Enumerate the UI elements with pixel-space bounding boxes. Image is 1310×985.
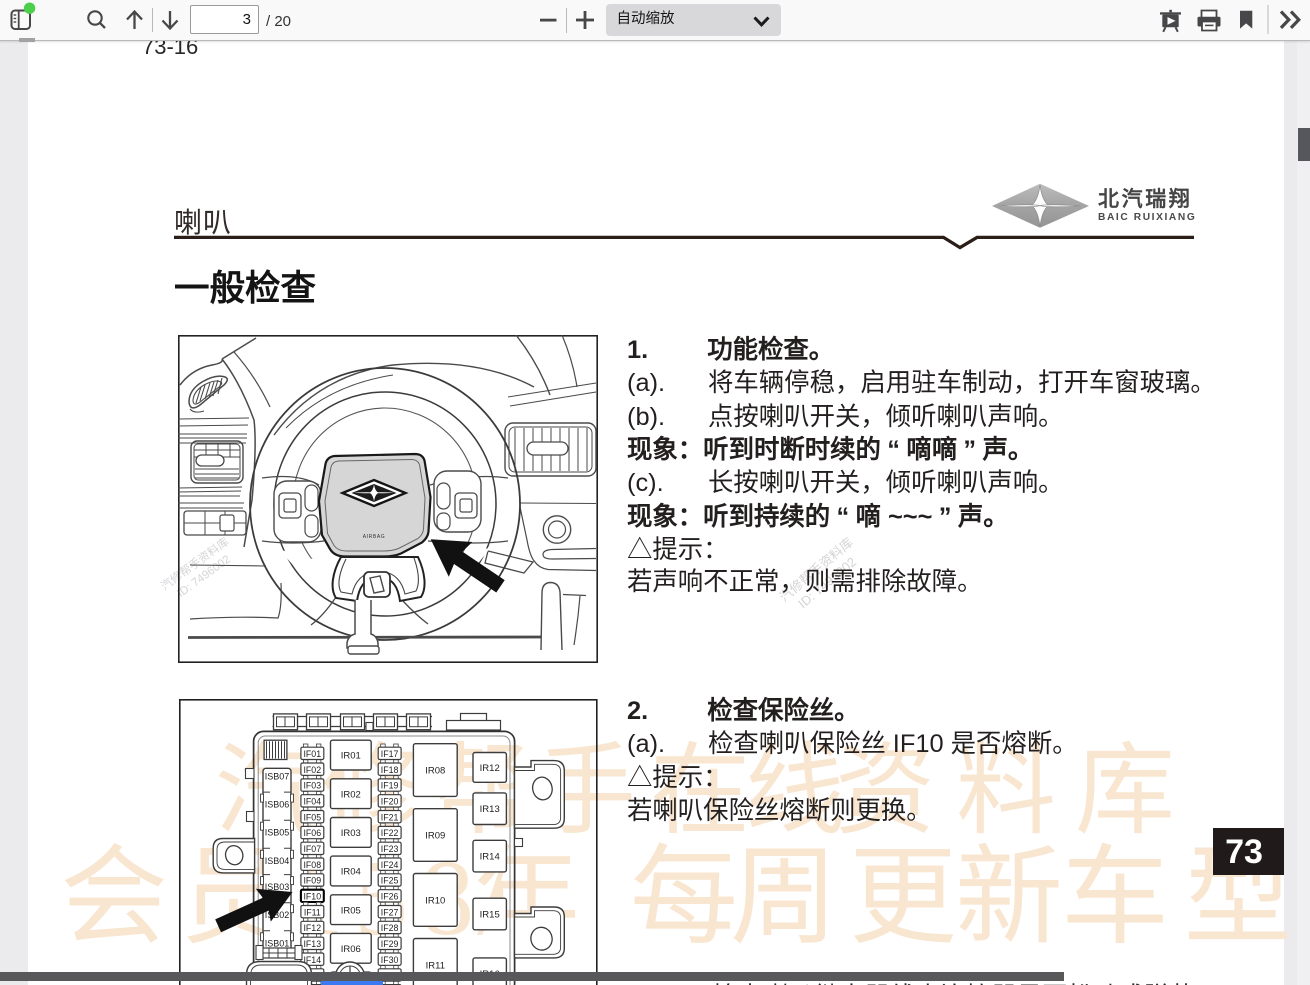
svg-text:IR13: IR13 [479,804,499,815]
svg-text:IR08: IR08 [425,765,445,776]
svg-text:IF12: IF12 [303,923,321,933]
svg-text:AIRBAG: AIRBAG [363,534,386,540]
svg-text:ISB01: ISB01 [264,938,289,948]
svg-text:IF13: IF13 [303,939,321,949]
svg-text:IR14: IR14 [479,851,499,862]
svg-text:IR12: IR12 [479,762,499,773]
svg-text:IF07: IF07 [303,844,321,854]
svg-text:IF08: IF08 [303,859,321,869]
svg-text:IF28: IF28 [380,923,398,933]
svg-text:ISB04: ISB04 [264,855,289,865]
svg-text:IF19: IF19 [380,780,398,790]
svg-text:IR10: IR10 [425,895,445,906]
svg-text:IF20: IF20 [380,796,398,806]
svg-text:IF30: IF30 [380,954,398,964]
svg-text:ISB07: ISB07 [264,771,289,781]
svg-text:IR02: IR02 [340,789,360,800]
svg-text:IF22: IF22 [380,828,398,838]
svg-text:IR11: IR11 [425,960,444,971]
svg-text:IF01: IF01 [303,749,321,759]
svg-text:IF06: IF06 [303,828,321,838]
svg-text:IR06: IR06 [340,943,360,954]
svg-text:IR04: IR04 [340,866,360,877]
svg-text:IF27: IF27 [380,907,398,917]
svg-text:IR15: IR15 [479,909,499,920]
svg-text:IR05: IR05 [340,905,360,916]
svg-text:IF23: IF23 [380,844,398,854]
svg-text:IF18: IF18 [380,764,398,774]
svg-text:IF05: IF05 [303,812,321,822]
svg-text:IF21: IF21 [380,812,398,822]
svg-text:IR03: IR03 [340,828,360,839]
svg-text:IF25: IF25 [380,875,398,885]
svg-text:IF11: IF11 [303,907,320,917]
svg-text:IF09: IF09 [303,875,321,885]
svg-text:IF02: IF02 [303,764,321,774]
svg-text:IF10: IF10 [303,891,321,901]
svg-text:ISB06: ISB06 [264,799,289,809]
svg-text:IR01: IR01 [340,750,360,761]
svg-text:IF03: IF03 [303,780,321,790]
svg-text:IF17: IF17 [380,749,398,759]
svg-text:IF29: IF29 [380,939,398,949]
svg-text:IF24: IF24 [380,859,398,869]
svg-text:IF26: IF26 [380,891,398,901]
svg-text:IF04: IF04 [303,796,321,806]
svg-text:ISB05: ISB05 [264,827,289,837]
svg-text:IR09: IR09 [425,830,445,841]
